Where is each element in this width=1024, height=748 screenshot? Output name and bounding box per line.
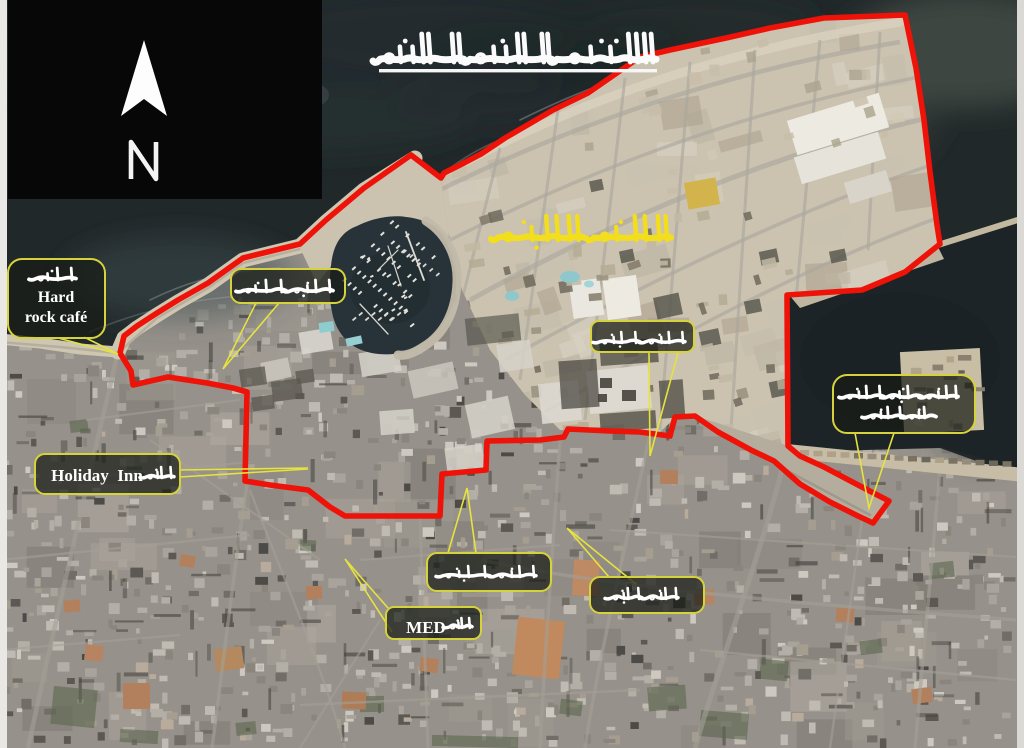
svg-text:Hard: Hard [38,289,75,306]
svg-text:Holiday Inn: Holiday Inn [51,466,143,485]
svg-text:MED: MED [406,618,446,637]
svg-text:rock café: rock café [25,309,87,326]
